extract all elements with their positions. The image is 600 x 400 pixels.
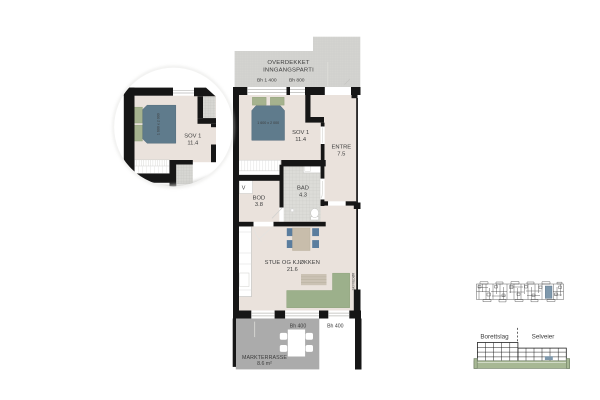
svg-text:Bh 400: Bh 400 — [327, 323, 344, 329]
svg-text:1 600 x 2 000: 1 600 x 2 000 — [156, 113, 160, 135]
svg-text:4.3: 4.3 — [299, 192, 307, 198]
svg-text:3.8: 3.8 — [255, 202, 263, 208]
svg-text:8.6 m²: 8.6 m² — [257, 361, 272, 367]
svg-text:Bh 1 400: Bh 1 400 — [257, 78, 277, 84]
svg-text:BOD: BOD — [253, 195, 266, 201]
svg-text:7.5: 7.5 — [337, 152, 345, 158]
svg-text:1 600 x 2 000: 1 600 x 2 000 — [257, 121, 279, 125]
svg-text:SKYVEDØR: SKYVEDØR — [352, 272, 356, 290]
svg-text:Bh 800: Bh 800 — [289, 78, 305, 84]
svg-text:11.4: 11.4 — [295, 137, 307, 143]
svg-text:Selveier: Selveier — [532, 334, 555, 341]
svg-text:MARKTERRASSE: MARKTERRASSE — [242, 355, 287, 361]
svg-text:V: V — [242, 185, 246, 191]
svg-text:STUE OG KJØKKEN: STUE OG KJØKKEN — [265, 260, 320, 266]
svg-text:INNGANGSPARTI: INNGANGSPARTI — [263, 68, 314, 74]
svg-text:Borettslag: Borettslag — [480, 334, 509, 341]
svg-text:OVERDEKKET: OVERDEKKET — [267, 60, 309, 66]
svg-text:SOV 1: SOV 1 — [184, 134, 201, 140]
svg-text:11.4: 11.4 — [187, 141, 199, 147]
svg-text:SOV 1: SOV 1 — [292, 130, 309, 136]
svg-text:21.6: 21.6 — [287, 267, 298, 273]
svg-text:BAD: BAD — [297, 186, 309, 192]
svg-text:ENTRE: ENTRE — [331, 145, 351, 151]
svg-text:Bh 400: Bh 400 — [290, 323, 307, 329]
